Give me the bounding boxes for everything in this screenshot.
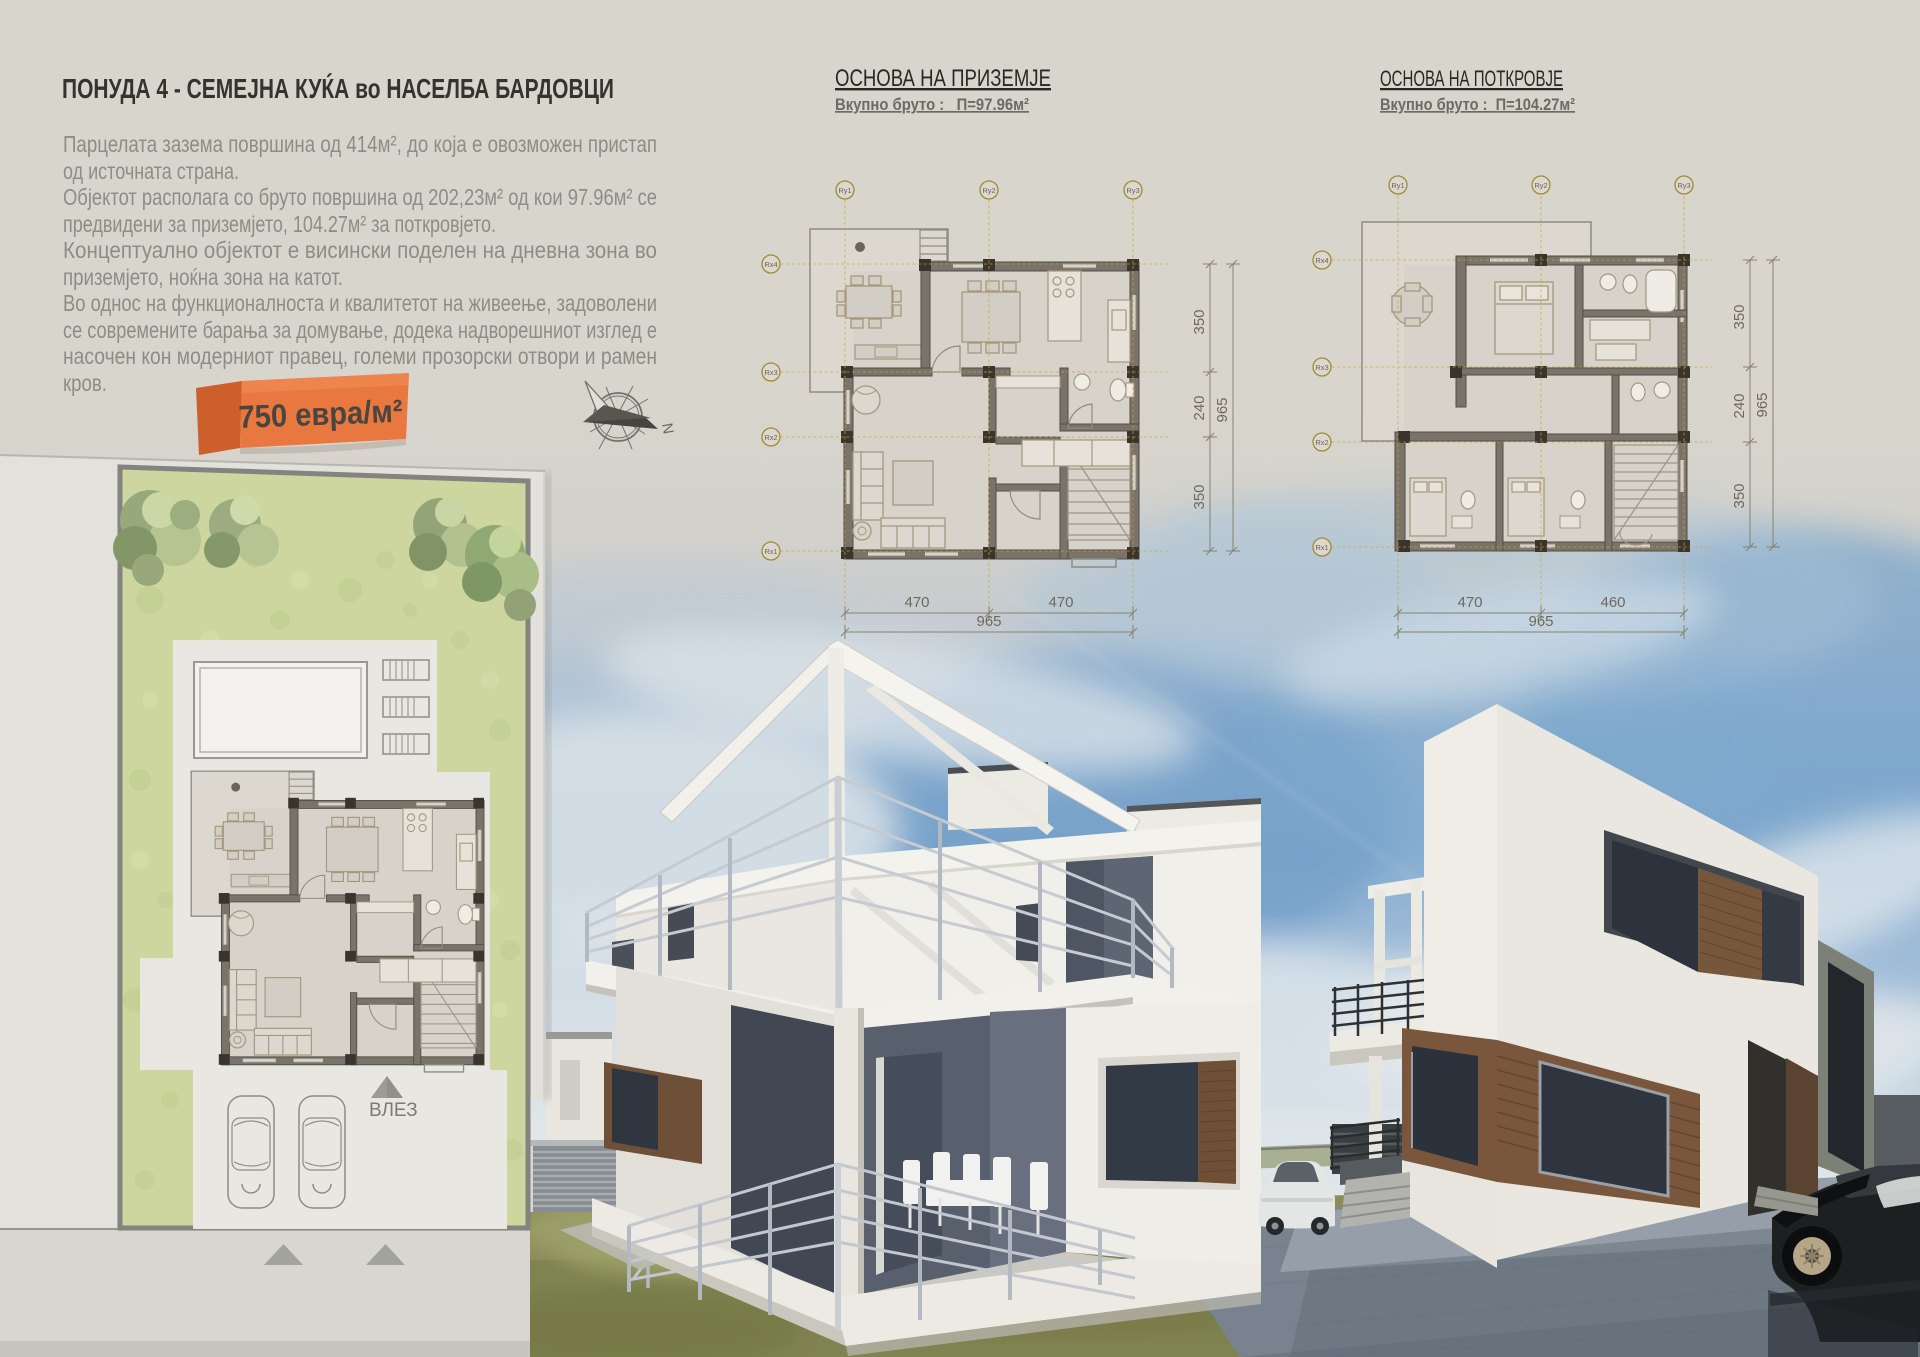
svg-text:350: 350 (1731, 483, 1748, 508)
svg-text:Rx1: Rx1 (764, 547, 777, 556)
svg-text:460: 460 (1600, 594, 1625, 611)
svg-text:Објектот располага со бруто по: Објектот располага со бруто површина од … (63, 184, 657, 210)
svg-text:965: 965 (976, 613, 1001, 630)
svg-text:предвидени за приземјето, 104.: предвидени за приземјето, 104.27м² за по… (63, 211, 496, 237)
svg-text:470: 470 (1048, 594, 1073, 611)
svg-text:Ry3: Ry3 (1677, 181, 1690, 190)
svg-text:Rx4: Rx4 (1315, 256, 1328, 265)
svg-text:750 евра/м²: 750 евра/м² (238, 393, 403, 435)
svg-text:Вкупно бруто : П=97.96м²: Вкупно бруто : П=97.96м² (835, 95, 1029, 114)
svg-text:Rx1: Rx1 (1315, 543, 1328, 552)
svg-text:ПОНУДА 4 - СЕМЕЈНА КУЌА во НАС: ПОНУДА 4 - СЕМЕЈНА КУЌА во НАСЕЛБА БАРДО… (62, 73, 614, 104)
svg-text:ВЛЕЗ: ВЛЕЗ (369, 1100, 418, 1121)
svg-text:350: 350 (1191, 309, 1208, 334)
svg-text:965: 965 (1214, 397, 1231, 422)
svg-text:Ry1: Ry1 (838, 186, 851, 195)
svg-text:ОСНОВА НА ПОТКРОВЈЕ: ОСНОВА НА ПОТКРОВЈЕ (1380, 66, 1563, 91)
svg-text:965: 965 (1528, 613, 1553, 630)
svg-text:Парцелата зазема површина од 4: Парцелата зазема површина од 414м², до к… (63, 131, 657, 157)
svg-text:350: 350 (1191, 484, 1208, 509)
svg-text:Во однос на функционалноста и: Во однос на функционалноста и квалитетот… (63, 290, 657, 316)
svg-text:Ry2: Ry2 (1534, 181, 1547, 190)
svg-text:350: 350 (1731, 304, 1748, 329)
svg-text:Rx3: Rx3 (1315, 363, 1328, 372)
svg-text:од источната страна.: од источната страна. (63, 158, 239, 184)
svg-text:ОСНОВА НА ПРИЗЕМЈЕ: ОСНОВА НА ПРИЗЕМЈЕ (835, 65, 1051, 92)
svg-text:Ry1: Ry1 (1391, 181, 1404, 190)
svg-text:470: 470 (904, 594, 929, 611)
svg-text:240: 240 (1191, 395, 1208, 420)
svg-text:Концептуално објектот е вис: Концептуално објектот е висински поделен… (63, 237, 657, 263)
svg-text:приземјето, ноќна зона на като: приземјето, ноќна зона на катот. (63, 264, 343, 290)
svg-text:470: 470 (1457, 594, 1482, 611)
svg-text:се современите барања за домув: се современите барања за домување, додек… (63, 317, 657, 343)
svg-text:240: 240 (1731, 393, 1748, 418)
svg-text:насочен кон модерниот правец,: насочен кон модерниот правец, големи про… (63, 343, 657, 369)
svg-text:Rx3: Rx3 (764, 368, 777, 377)
svg-text:Rx2: Rx2 (764, 433, 777, 442)
svg-text:Ry3: Ry3 (1126, 186, 1139, 195)
svg-text:кров.: кров. (63, 370, 107, 396)
svg-text:965: 965 (1754, 392, 1771, 417)
svg-text:Rx4: Rx4 (764, 260, 777, 269)
svg-text:Ry2: Ry2 (982, 186, 995, 195)
svg-text:Вкупно бруто : П=104.27м²: Вкупно бруто : П=104.27м² (1380, 95, 1575, 114)
svg-text:Rx2: Rx2 (1315, 438, 1328, 447)
